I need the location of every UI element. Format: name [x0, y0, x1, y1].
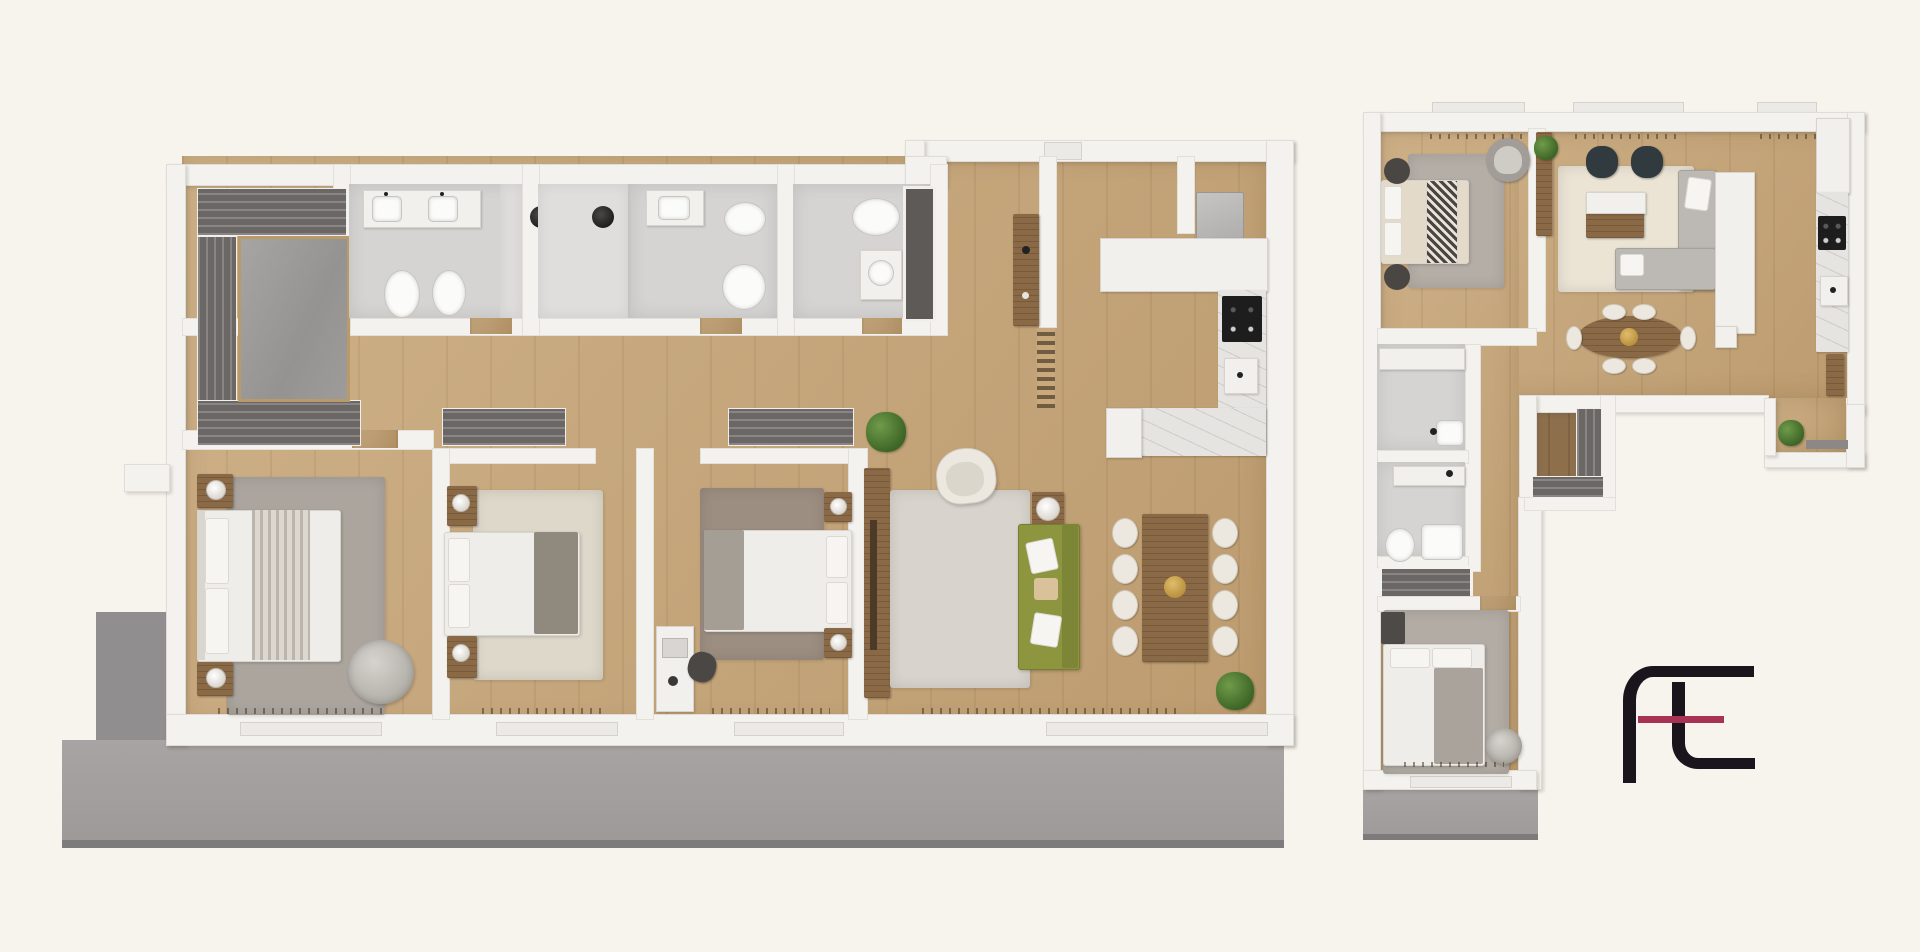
b-armchair-1	[1586, 146, 1618, 178]
window-sill-bedroom2	[496, 722, 618, 736]
door-gap-bed2	[1480, 596, 1516, 610]
living-rug	[890, 490, 1030, 688]
bedroom3-wardrobe	[728, 408, 854, 446]
bath1-bidet	[432, 270, 466, 316]
dining-chair-5	[1212, 518, 1238, 548]
bedroom3-lamp-1	[830, 498, 847, 515]
b-kitchen-sink-drain	[1830, 287, 1836, 293]
b-kitchen-wood-strip	[1826, 354, 1844, 396]
entry-wardrobe-side	[197, 236, 237, 404]
b-bath2-faucet	[1446, 470, 1453, 477]
b-bed1-runner	[1426, 180, 1458, 264]
bath1-sink-left	[372, 196, 402, 222]
b-fringe-bed1	[1430, 134, 1522, 139]
dining-chair-7	[1212, 590, 1238, 620]
entry-wardrobe-top	[197, 188, 347, 236]
living-plant-bottom-icon	[1216, 672, 1254, 710]
tv-sideboard	[864, 468, 890, 698]
b-bath1-vanity	[1379, 348, 1465, 370]
tv-screen	[870, 520, 877, 650]
dining-chair-4	[1112, 626, 1138, 656]
door-gap-bath2	[700, 318, 742, 334]
plan-a-wall-right	[1266, 140, 1294, 746]
bath2-bidet	[724, 202, 766, 236]
b-bed2-blanket	[1434, 668, 1483, 764]
window-sill-master	[240, 722, 382, 736]
window-fringe-bedroom2	[482, 708, 606, 714]
bedroom3-desk-item	[668, 676, 678, 686]
bath3-shower-niche	[903, 186, 936, 322]
plan-b-terrace	[1363, 788, 1538, 840]
kitchen-sink-drain	[1237, 372, 1243, 378]
bath1-shower	[500, 184, 522, 318]
b-kitchen-counter-top	[1816, 118, 1850, 194]
bath2-glass-line	[628, 184, 630, 318]
logo-t-stroke-icon	[1672, 682, 1755, 769]
wall-utility	[1177, 156, 1195, 234]
plan-a-wall-top-right	[905, 140, 1294, 162]
b-bed2-dresser	[1381, 612, 1405, 644]
b-partition	[1715, 172, 1755, 334]
b-dining-centerpiece	[1620, 328, 1638, 346]
b-sideboard-top	[1586, 192, 1646, 214]
plan-a-left-ledge	[124, 464, 170, 492]
b-swivel-chair-seat	[1494, 146, 1522, 174]
master-pillow-2	[205, 588, 229, 654]
entry-wardrobe-bottom	[197, 400, 361, 446]
bath2-toilet	[722, 264, 766, 310]
sofa-cushion-tan	[1034, 578, 1058, 600]
wall-bedroom2-bedroom3	[636, 448, 654, 720]
window-fringe-bedroom3	[712, 708, 830, 714]
plan-b-terrace-edge	[1363, 834, 1538, 840]
entry-sideboard	[1013, 214, 1039, 326]
wall-bedroom3-top	[700, 448, 850, 464]
bath1-faucet-left	[384, 192, 388, 196]
master-lamp-2	[206, 668, 226, 688]
sofa-pillow-2	[1030, 612, 1063, 648]
closet-wall-bottom	[1524, 497, 1616, 511]
bath2-shower-floor	[538, 184, 630, 318]
window-sill-bedroom3	[734, 722, 844, 736]
bedroom2-wardrobe	[442, 408, 566, 446]
bedroom3-pillow-2	[826, 582, 848, 624]
bedroom3-pillow-1	[826, 536, 848, 578]
master-pillow-1	[205, 518, 229, 584]
plan-a-side-patio	[96, 612, 168, 740]
b-balcony-bench	[1806, 440, 1848, 449]
b-chair-1	[1602, 304, 1626, 320]
b-sofa-pillow	[1620, 254, 1644, 276]
bath3-sink	[868, 260, 894, 286]
bath1-faucet-right	[440, 192, 444, 196]
door-gap-bath1	[470, 318, 512, 334]
hall-radiator	[1037, 328, 1055, 408]
b-bed1-pouf-1	[1384, 158, 1410, 184]
window-fringe-living	[922, 708, 1182, 714]
balcony-wall-left	[1764, 398, 1776, 456]
bath1-toilet	[384, 270, 420, 318]
sofa-backrest	[1062, 524, 1078, 668]
b-chair-4	[1632, 358, 1656, 374]
b-bed2-pillow-1	[1390, 648, 1430, 668]
b-fringe-living	[1575, 134, 1681, 139]
b-bed1-pillow-2	[1384, 222, 1402, 256]
kitchen-counter-top	[1100, 238, 1268, 292]
b-partition-step	[1715, 326, 1737, 348]
bath2-pendant-light-icon	[592, 206, 614, 228]
b-closet-wardrobe-h	[1532, 476, 1604, 498]
b-bath2-shower-tray	[1421, 524, 1463, 560]
b-bath2-vanity	[1393, 466, 1465, 486]
bedroom2-blanket	[534, 532, 578, 634]
b-bath1-sink	[1436, 420, 1464, 446]
b-plant-ledge-icon	[1534, 136, 1558, 160]
plan-a-terrace-edge	[62, 840, 1284, 848]
bath2-sink	[658, 196, 690, 220]
living-plant-top-icon	[866, 412, 906, 452]
balcony-wall-right	[1846, 404, 1865, 468]
bath3-toilet	[852, 198, 900, 236]
door-gap-bath3	[862, 318, 902, 334]
b-chair-2	[1632, 304, 1656, 320]
b-chair-3	[1602, 358, 1626, 374]
dining-centerpiece	[1164, 576, 1186, 598]
dining-chair-6	[1212, 554, 1238, 584]
b-bath1-faucet	[1430, 428, 1437, 435]
bedroom2-pillow-1	[448, 538, 470, 582]
b-bed1-pillow-1	[1384, 186, 1402, 220]
logo-accent-bar-icon	[1638, 716, 1724, 723]
b-bed1-pouf-2	[1384, 264, 1410, 290]
b-fringe-right	[1760, 134, 1816, 139]
plan-a-terrace	[62, 740, 1284, 840]
master-lamp-1	[206, 480, 226, 500]
b-bath2-toilet	[1385, 528, 1415, 562]
bedroom2-lamp-1	[452, 494, 470, 512]
master-pouf	[348, 640, 414, 704]
plan-b-wall-bottom-section	[1519, 395, 1769, 413]
kitchen-cooktop	[1222, 296, 1262, 342]
dining-chair-2	[1112, 554, 1138, 584]
bedroom3-lamp-2	[830, 634, 847, 651]
washing-machine	[1196, 192, 1244, 242]
plan-a-wall-left	[166, 164, 186, 746]
bedroom2-lamp-2	[452, 644, 470, 662]
b-bed2-pillow-2	[1432, 648, 1472, 668]
dining-chair-8	[1212, 626, 1238, 656]
b-chair-6	[1680, 326, 1696, 350]
master-headboard	[197, 510, 205, 660]
wall-bedroom2-top	[432, 448, 596, 464]
b-chair-5	[1566, 326, 1582, 350]
kitchen-island-cap	[1106, 408, 1142, 458]
bath1-sink-right	[428, 196, 458, 222]
storage-room	[238, 236, 350, 402]
bedroom3-blanket	[704, 530, 744, 630]
window-fringe-master	[218, 708, 388, 714]
b-sofa-throw	[1684, 176, 1712, 211]
b-balcony-plant-icon	[1778, 420, 1804, 446]
master-throw	[252, 510, 310, 660]
dining-chair-3	[1112, 590, 1138, 620]
window-sill-living	[1046, 722, 1268, 736]
b-fringe-bed2	[1404, 762, 1504, 767]
b-armchair-2	[1631, 146, 1663, 178]
side-table-tray	[1036, 497, 1060, 521]
bed2-window-sill	[1410, 776, 1512, 788]
bedroom3-laptop	[662, 638, 688, 658]
bedroom2-pillow-2	[448, 584, 470, 628]
dining-chair-1	[1112, 518, 1138, 548]
floorplan-render	[0, 0, 1920, 952]
b-closet-wardrobe-v	[1576, 408, 1602, 480]
plan-b-wall-top	[1363, 112, 1865, 132]
b-kitchen-cooktop	[1818, 216, 1846, 250]
b-bed2-chair	[1486, 728, 1522, 764]
sideboard-decor-1	[1022, 246, 1030, 254]
wall-entry-kitchen	[1039, 156, 1057, 328]
sideboard-decor-2	[1022, 292, 1029, 299]
